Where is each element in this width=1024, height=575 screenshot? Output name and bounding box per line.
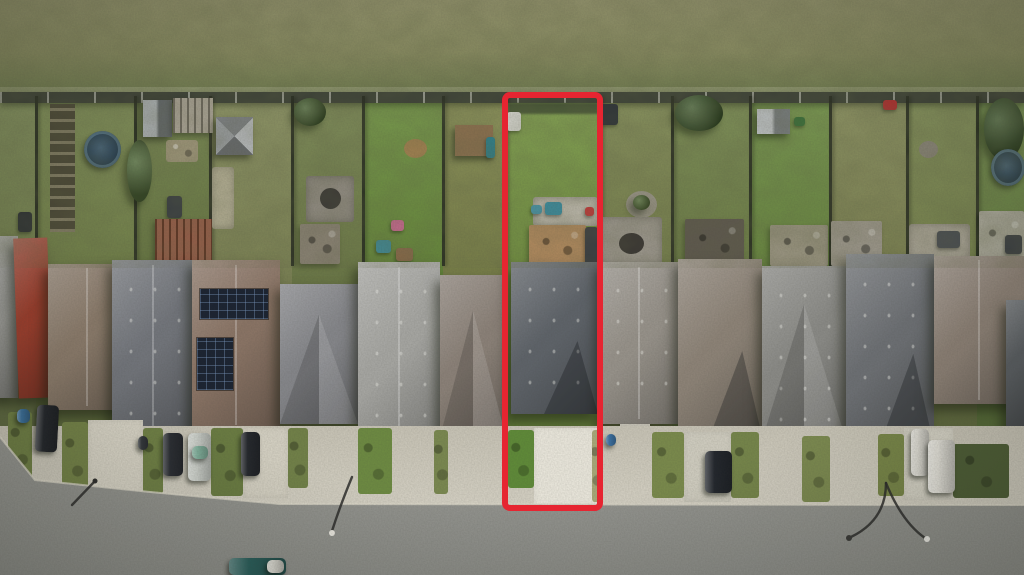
vehicle-trailer — [911, 429, 929, 476]
front-grass-strip — [358, 428, 392, 494]
front-grass-strip — [508, 430, 534, 488]
front-grass-strip — [62, 422, 88, 492]
vehicle-bin — [17, 409, 30, 423]
yard-fence — [749, 96, 752, 266]
vehicle-camper-van — [928, 440, 955, 493]
front-grass-strip — [211, 428, 243, 496]
vehicle-car — [241, 432, 260, 476]
backyard-firepit-ring — [919, 141, 938, 158]
backyard-tree — [675, 95, 723, 131]
backyard-patch — [212, 167, 234, 229]
backyard-deck-red — [155, 219, 212, 265]
backyard-firepit — [320, 188, 341, 209]
backyard-deck — [529, 225, 586, 266]
front-grass-strip — [652, 432, 684, 498]
front-grass-strip — [434, 430, 448, 494]
solar-panels — [197, 338, 233, 390]
backyard-toy — [531, 205, 542, 214]
backyard-toy — [376, 240, 391, 253]
house-roof — [358, 262, 440, 442]
backyard-toy — [396, 248, 413, 261]
backyard-object — [585, 227, 598, 267]
house-roof — [280, 284, 358, 424]
backyard-clutter — [166, 140, 198, 162]
roof-vents — [365, 276, 434, 427]
roof-vents — [606, 275, 672, 411]
yard-fence — [291, 96, 294, 266]
backyard-tree — [294, 98, 326, 126]
backyard-shed — [757, 109, 790, 134]
house-roof — [13, 237, 53, 398]
front-grass-strip — [953, 444, 1009, 498]
vehicle-bin — [606, 434, 616, 446]
roof-vents — [769, 280, 840, 426]
backyard-tree — [127, 140, 152, 202]
backyard-toy — [486, 137, 495, 158]
house-roof — [112, 260, 194, 434]
vehicle-car — [163, 433, 183, 476]
yard-fence — [442, 96, 445, 266]
house-roof — [1006, 300, 1024, 430]
vehicle-suv — [35, 404, 59, 452]
yard-fence — [362, 96, 365, 266]
backyard-bush — [633, 195, 650, 210]
backyard-object — [600, 104, 618, 125]
street-vehicle — [267, 560, 284, 573]
backyard-toy — [794, 117, 805, 126]
front-grass-strip — [592, 430, 602, 502]
house-roof — [846, 254, 934, 446]
backyard-shed-pyramid — [216, 117, 253, 155]
backyard-object — [167, 196, 182, 218]
backyard-pool — [991, 149, 1024, 186]
house-roof — [440, 275, 506, 437]
backyard-object — [507, 112, 521, 131]
backyard-deck — [770, 225, 828, 266]
house-roof — [511, 262, 598, 414]
vehicle-bin — [138, 436, 148, 450]
house-roof — [600, 262, 678, 424]
roof-vents — [853, 269, 927, 430]
backyard-object — [937, 231, 960, 248]
front-grass-strip — [731, 432, 759, 498]
backyard-deck — [300, 224, 340, 264]
backyard-pergola — [173, 98, 213, 133]
backyard-toy — [545, 202, 562, 215]
solar-panels — [200, 289, 268, 319]
backyard-object — [1005, 235, 1022, 254]
backyard-garden-rows — [50, 104, 75, 232]
scrub-field — [0, 0, 1024, 96]
roof-vents — [518, 274, 591, 402]
aerial-photo — [0, 0, 1024, 575]
yard-fence — [671, 96, 674, 266]
driveway — [88, 420, 143, 494]
backyard-firepit — [619, 233, 644, 254]
backyard-shadow-strip — [508, 103, 598, 114]
backyard-bin — [18, 212, 32, 232]
front-grass-strip — [288, 428, 308, 488]
roof-vents — [119, 274, 188, 420]
backyard-shed — [143, 100, 172, 137]
backyard-pool — [84, 131, 121, 168]
house-roof — [678, 259, 762, 436]
driveway — [534, 428, 598, 508]
backyard-toy — [585, 207, 594, 216]
vehicle-car-glass — [192, 446, 208, 459]
front-grass-strip — [802, 436, 830, 502]
backyard-toy — [883, 100, 897, 110]
backyard-firepit-ring — [404, 139, 427, 158]
house-roof — [762, 266, 846, 440]
backyard-toy — [391, 220, 404, 231]
vehicle-car — [705, 451, 732, 493]
front-grass-strip — [878, 434, 904, 496]
